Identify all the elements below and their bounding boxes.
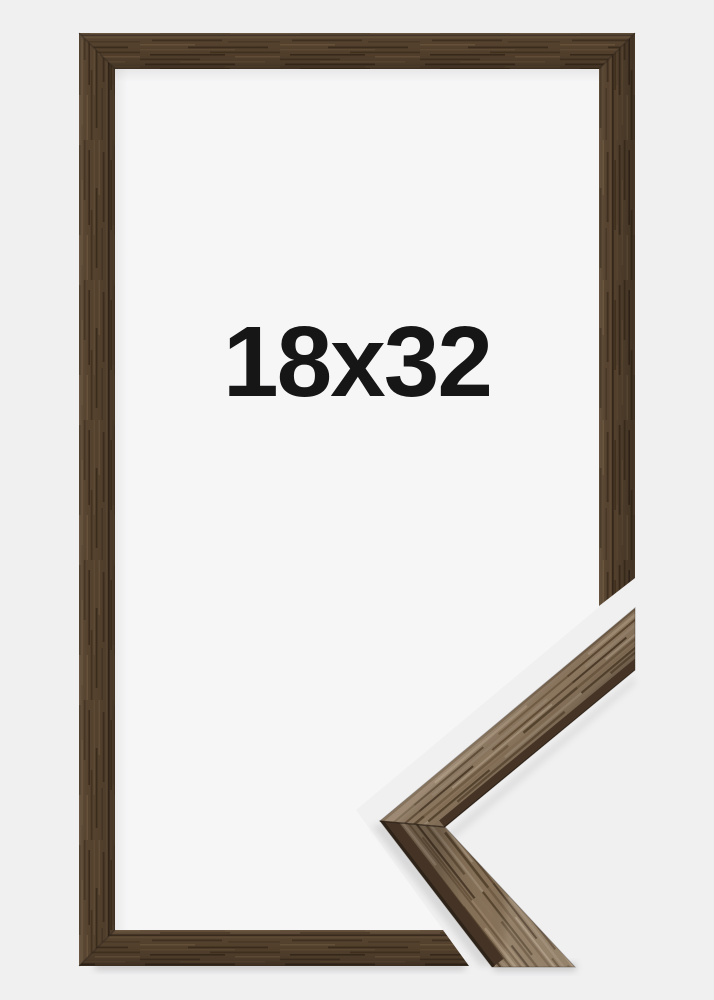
frame-left-bar [79, 33, 115, 966]
size-label: 18x32 [0, 312, 714, 412]
frame-product-photo: 18x32 [0, 0, 714, 1000]
frame-graphic [0, 0, 714, 1000]
frame-bottom-bar [79, 930, 469, 966]
frame-top-bar [79, 33, 635, 69]
